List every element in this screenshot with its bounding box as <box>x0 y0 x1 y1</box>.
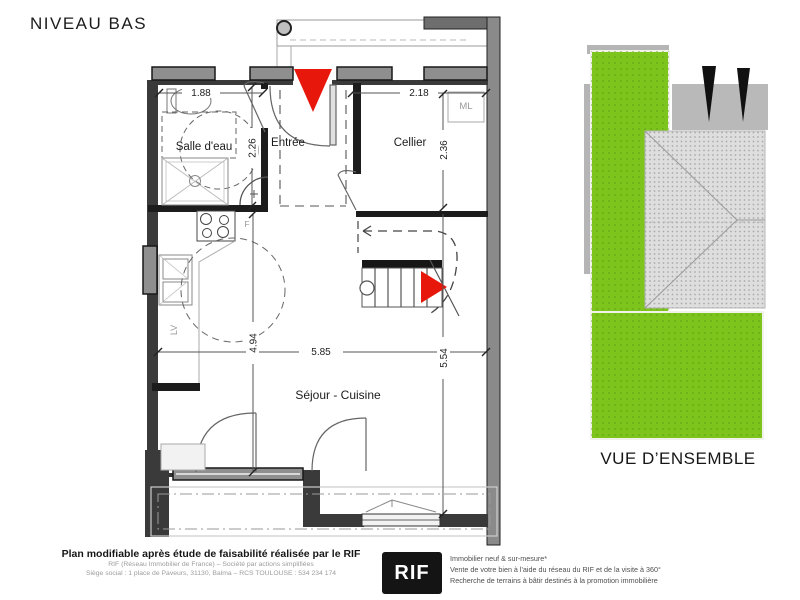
footer-company-line2: Siège social : 1 place de Paveurs, 31130… <box>52 569 370 578</box>
label-washing-machine: ML <box>459 101 472 112</box>
footer-company-line1: RIF (Réseau Immobilier de France) – Soci… <box>52 560 370 569</box>
rif-logo: RIF <box>382 552 442 594</box>
dim-living-depth-right: 5.54 <box>439 348 450 368</box>
floor-plan-page: NIVEAU BAS <box>0 0 800 600</box>
dim-bathroom-width: 1.88 <box>191 88 211 99</box>
entrance-arrow <box>294 69 332 112</box>
driveway <box>672 84 768 130</box>
footer-services: Immobilier neuf & sur-mesure* Vente de v… <box>450 553 750 586</box>
overview-label: VUE D’ENSEMBLE <box>583 449 773 469</box>
porch-column <box>277 21 291 35</box>
footer-disclaimer: Plan modifiable après étude de faisabili… <box>52 548 370 578</box>
label-entry: Entrée <box>271 137 305 149</box>
dim-bathroom-depth: 2.26 <box>248 138 259 158</box>
site-plan <box>583 40 773 448</box>
footer-service-2: Vente de votre bien à l'aide du réseau d… <box>450 564 750 575</box>
dim-cellar-depth: 2.36 <box>439 140 450 160</box>
label-dishwasher: LV <box>169 325 179 335</box>
dim-cellar-width: 2.18 <box>409 88 429 99</box>
label-fridge: F <box>244 219 249 229</box>
cooktop <box>197 211 235 241</box>
floor-plan-drawing: 1.88 2.18 2.26 2.36 4.94 5.85 5.54 Salle… <box>135 5 515 550</box>
rif-logo-text: RIF <box>394 562 429 585</box>
page-title: NIVEAU BAS <box>30 14 147 34</box>
label-cellar: Cellier <box>394 137 427 149</box>
dim-living-depth-left: 4.94 <box>249 333 260 353</box>
label-living: Séjour - Cuisine <box>295 388 381 402</box>
footer-service-1: Immobilier neuf & sur-mesure* <box>450 553 750 564</box>
dim-living-width: 5.85 <box>311 347 331 358</box>
footer-service-3: Recherche de terrains à bâtir destinés à… <box>450 575 750 586</box>
lawn-garden <box>591 312 763 439</box>
kitchen-sink <box>159 255 192 305</box>
table-dashed <box>181 238 285 342</box>
footer-disclaimer-bold: Plan modifiable après étude de faisabili… <box>52 548 370 560</box>
label-bathroom: Salle d'eau <box>176 141 233 153</box>
entrance-door-leaf <box>330 85 336 145</box>
house-roof <box>645 131 765 308</box>
staircase <box>358 221 459 316</box>
